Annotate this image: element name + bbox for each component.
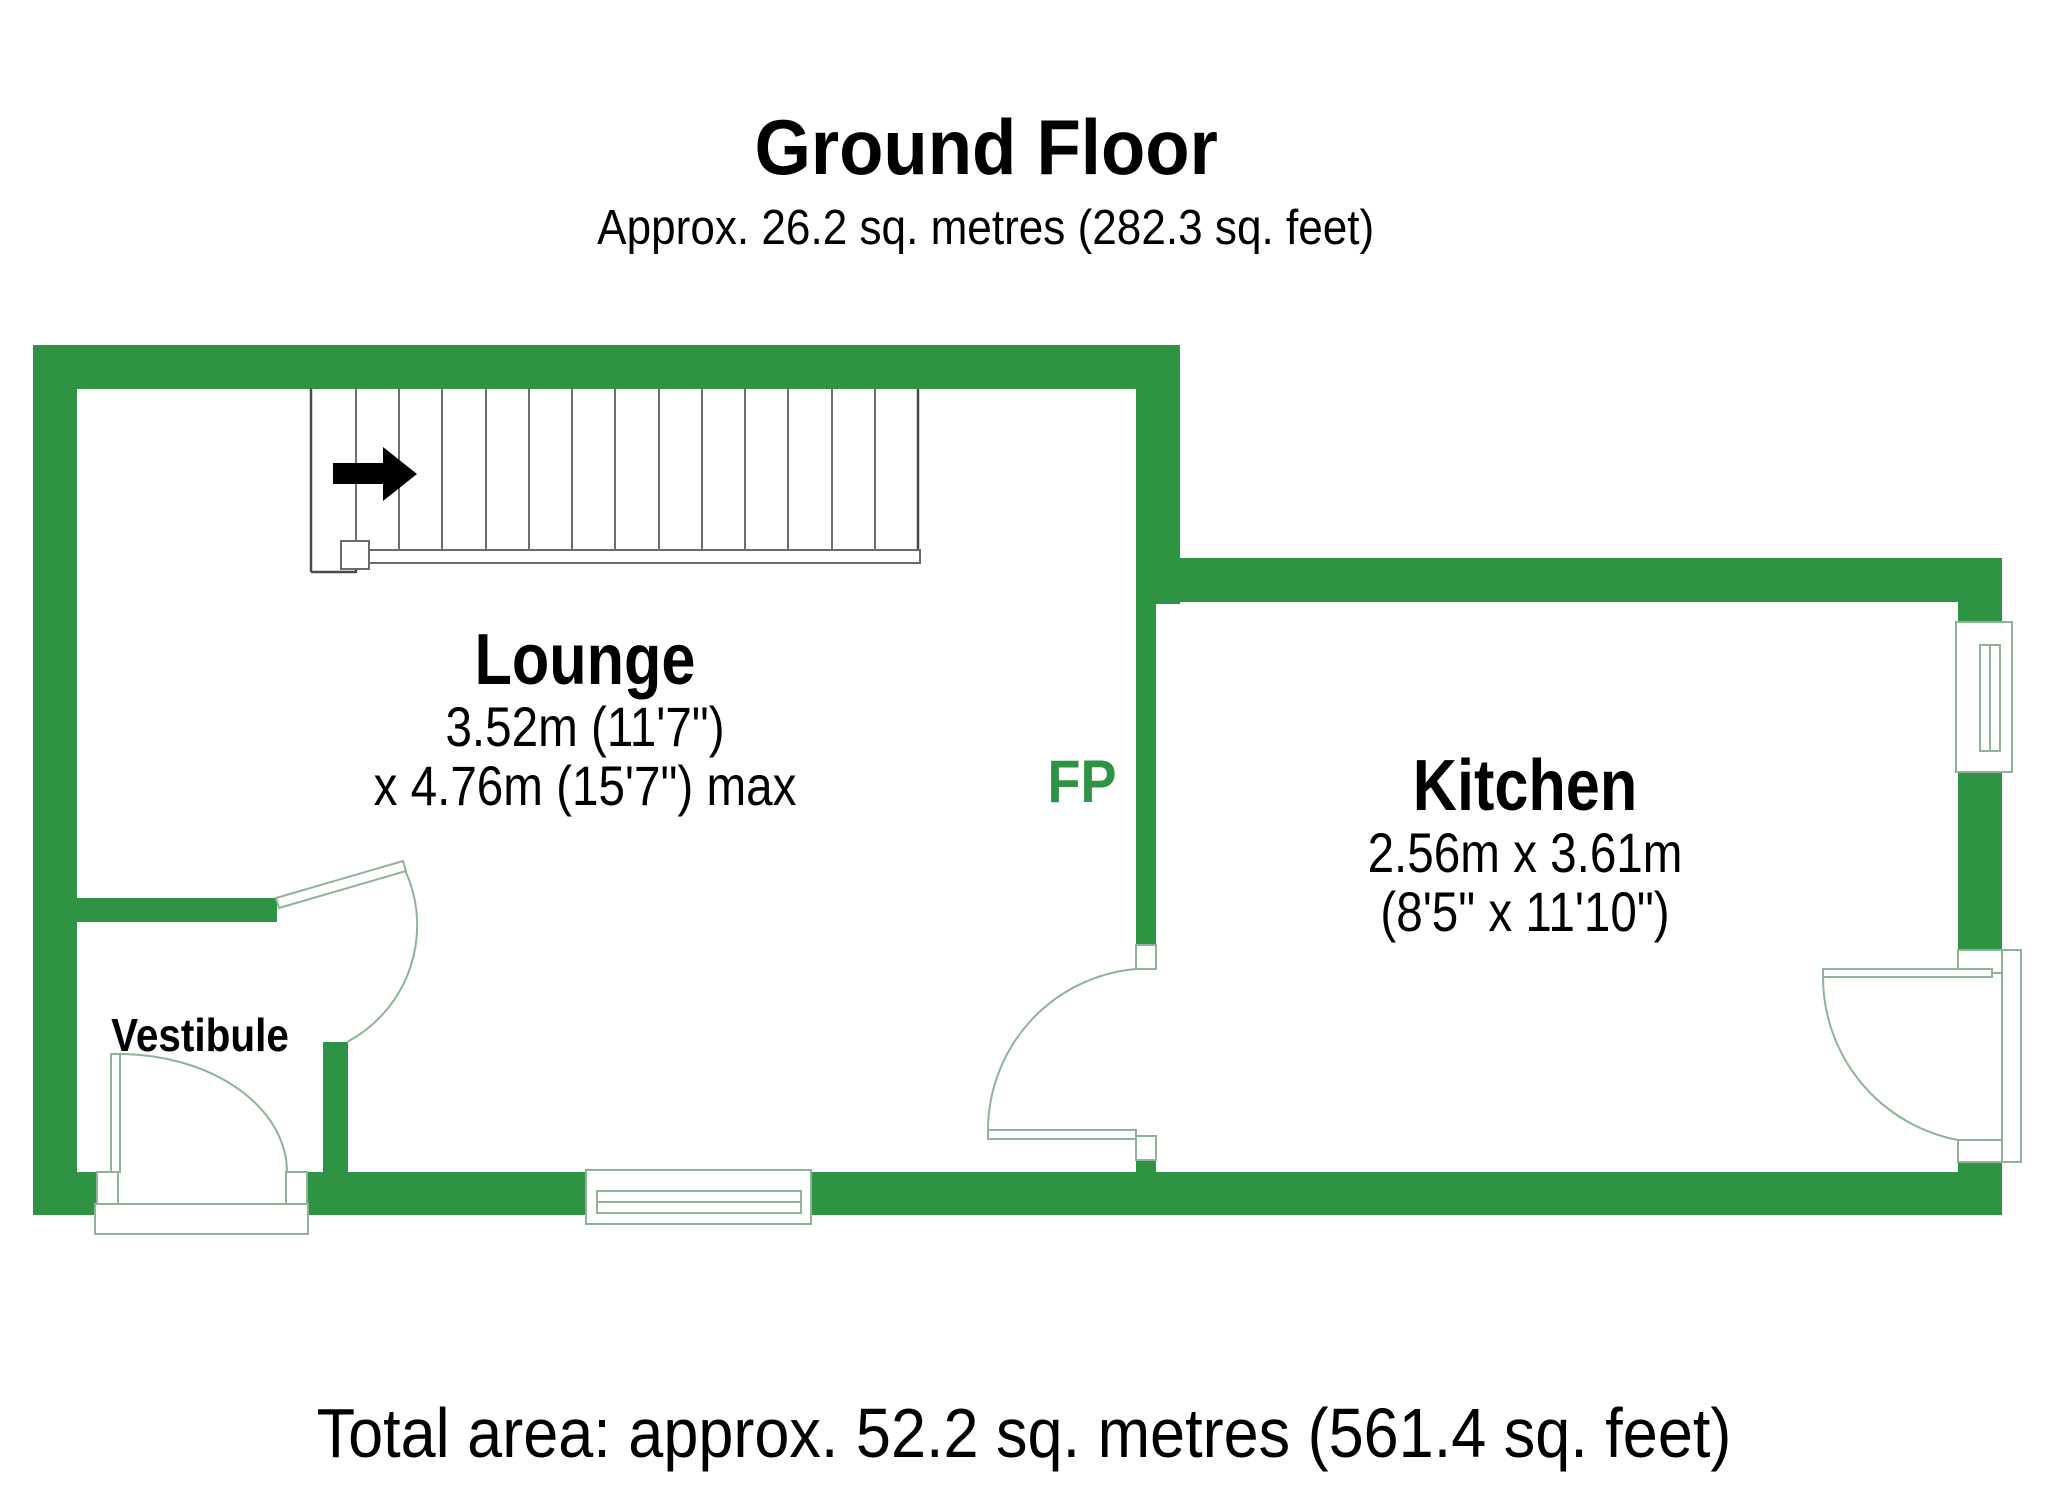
lounge-kitchen-door-jamb-top bbox=[1136, 945, 1156, 969]
vestibule-door-arc bbox=[347, 870, 417, 1042]
entrance-door-jamb-right bbox=[286, 1172, 307, 1204]
wall-bottom-right bbox=[810, 1172, 2002, 1215]
kitchen-back-door-frame bbox=[2002, 950, 2021, 1162]
vestibule-door-leaf bbox=[276, 861, 406, 908]
entrance-door-jamb-left bbox=[97, 1172, 118, 1204]
wall-lounge-top bbox=[33, 345, 1180, 389]
room-dim-lounge-2: x 4.76m (15'7") max bbox=[374, 757, 797, 815]
fireplace-label: FP bbox=[1044, 752, 1121, 812]
entrance-door-leaf bbox=[111, 1054, 120, 1172]
entrance-threshold bbox=[95, 1204, 308, 1234]
entrance-door bbox=[95, 1054, 308, 1234]
room-label-vestibule: Vestibule bbox=[99, 1012, 301, 1058]
wall-vestibule-stub bbox=[323, 1042, 348, 1174]
room-name-lounge: Lounge bbox=[374, 622, 797, 698]
kitchen-back-door-jamb-bottom bbox=[1958, 1140, 2002, 1162]
room-label-kitchen: Kitchen 2.56m x 3.61m (8'5" x 11'10") bbox=[1340, 748, 1710, 941]
kitchen-window bbox=[1956, 622, 2012, 772]
wall-bottom-left bbox=[33, 1172, 97, 1215]
lounge-kitchen-door-arc bbox=[988, 969, 1136, 1130]
total-area-text: Total area: approx. 52.2 sq. metres (561… bbox=[0, 1398, 2048, 1468]
wall-left bbox=[33, 345, 77, 1215]
room-name-vestibule: Vestibule bbox=[111, 1012, 289, 1058]
lounge-kitchen-door bbox=[988, 945, 1156, 1160]
wall-lounge-kitchen bbox=[1136, 602, 1156, 945]
room-name-kitchen: Kitchen bbox=[1368, 748, 1683, 824]
wall-right-mid bbox=[1958, 768, 2002, 952]
stairs-direction-arrow-icon bbox=[333, 447, 417, 501]
floorplan-page: Ground Floor Approx. 26.2 sq. metres (28… bbox=[0, 0, 2048, 1489]
room-label-lounge: Lounge 3.52m (11'7") x 4.76m (15'7") max bbox=[336, 622, 833, 815]
wall-bottom-mid bbox=[307, 1172, 587, 1215]
staircase-newel-post bbox=[341, 541, 369, 569]
entrance-door-arc bbox=[120, 1054, 287, 1172]
staircase-handrail bbox=[369, 550, 920, 563]
room-dim-lounge-1: 3.52m (11'7") bbox=[374, 698, 797, 756]
wall-connector bbox=[1136, 389, 1180, 604]
kitchen-back-door-leaf bbox=[1823, 969, 1992, 977]
kitchen-back-door-arc bbox=[1823, 977, 1958, 1140]
wall-vestibule-horizontal bbox=[77, 898, 277, 922]
room-dim-kitchen-1: 2.56m x 3.61m bbox=[1368, 824, 1683, 882]
lounge-kitchen-door-leaf bbox=[988, 1130, 1136, 1139]
wall-kitchen-top bbox=[1180, 558, 2002, 602]
floorplan bbox=[0, 0, 2048, 1489]
staircase bbox=[311, 389, 920, 572]
lounge-kitchen-door-jamb-bottom bbox=[1136, 1136, 1156, 1160]
room-dim-kitchen-2: (8'5" x 11'10") bbox=[1368, 883, 1683, 941]
staircase-treads bbox=[356, 389, 875, 549]
lounge-window bbox=[586, 1170, 811, 1224]
kitchen-back-door bbox=[1823, 950, 2021, 1162]
